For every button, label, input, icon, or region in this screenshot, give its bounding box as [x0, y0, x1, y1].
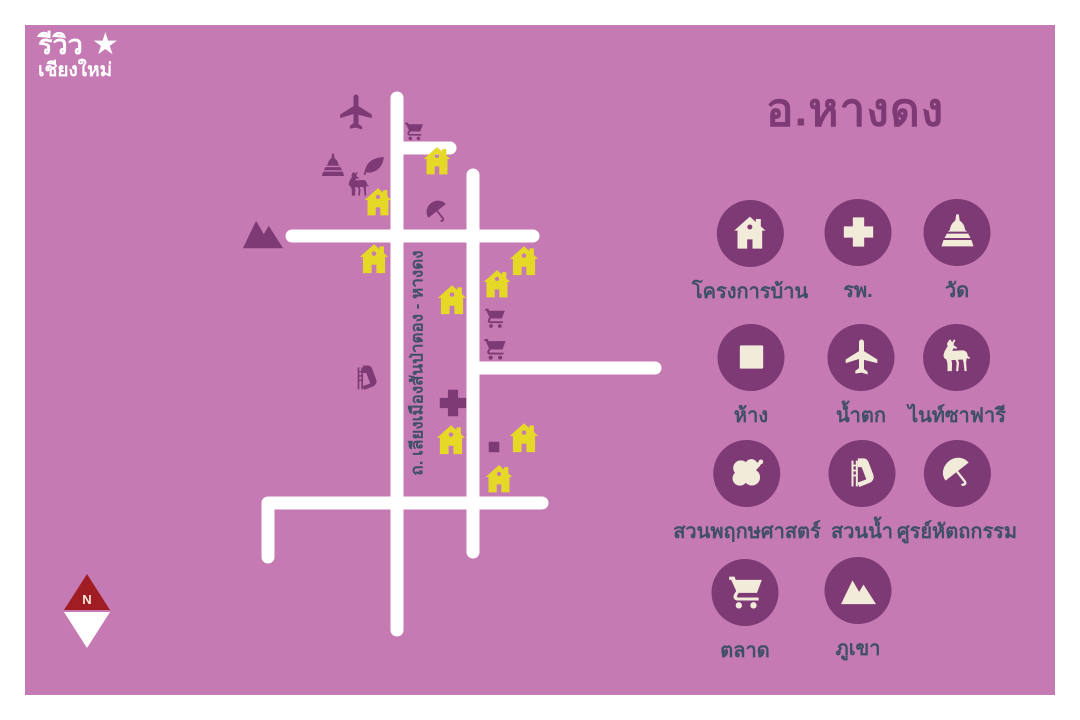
airplane-icon — [841, 337, 881, 377]
legend-label: สวนพฤกษศาสตร์ — [673, 515, 821, 547]
umbrella-icon — [937, 453, 977, 493]
slide-icon — [842, 453, 882, 493]
square-icon — [731, 337, 771, 377]
legend-item-house: โครงการบ้าน — [692, 200, 808, 307]
legend-label: ห้าง — [734, 399, 768, 431]
legend-item-flower: สวนพฤกษศาสตร์ — [673, 440, 821, 547]
star-icon: ★ — [92, 30, 119, 60]
legend-circle — [828, 324, 895, 391]
cart-icon — [725, 572, 765, 612]
legend-circle — [924, 440, 991, 507]
legend-label: รพ. — [843, 274, 872, 306]
legend-item-square: ห้าง — [718, 324, 785, 431]
flower-icon — [727, 453, 767, 493]
legend-circle — [825, 199, 892, 266]
legend-circle — [714, 440, 781, 507]
road-name-label: ถ. เลียงเมืองสันป่าตอง - หางดง — [404, 250, 431, 475]
mountain-icon — [838, 570, 878, 610]
legend-label: โครงการบ้าน — [692, 275, 808, 307]
logo-line1: รีวิว — [38, 31, 83, 59]
legend-circle — [924, 199, 991, 266]
legend-circle — [718, 324, 785, 391]
cross-icon — [838, 212, 878, 252]
legend-item-airplane: น้ำตก — [828, 324, 895, 431]
logo-line2: เชียงใหม่ — [38, 61, 119, 81]
legend-item-slide: สวนน้ำ — [829, 440, 896, 547]
legend-item-temple: วัด — [924, 199, 991, 306]
compass-south-triangle — [64, 612, 110, 648]
legend-label: วัด — [945, 274, 969, 306]
compass-icon: N — [63, 573, 111, 649]
legend-circle — [825, 557, 892, 624]
legend-item-deer: ไนท์ซาฟารี — [908, 324, 1006, 431]
legend-circle — [717, 200, 784, 267]
house-icon — [730, 213, 770, 253]
temple-icon — [937, 212, 977, 252]
legend-label: ไนท์ซาฟารี — [908, 399, 1006, 431]
deer-icon — [937, 337, 977, 377]
legend-label: ตลาด — [720, 634, 769, 666]
compass-n-label: N — [82, 592, 91, 607]
legend-item-umbrella: ศูรย์หัตถกรรม — [897, 440, 1017, 547]
legend-item-cart: ตลาด — [712, 559, 779, 666]
legend-label: ภูเขา — [836, 632, 881, 664]
legend-circle — [923, 324, 990, 391]
legend-circle — [712, 559, 779, 626]
legend-label: น้ำตก — [836, 399, 886, 431]
legend-label: ศูรย์หัตถกรรม — [897, 515, 1017, 547]
legend-item-mountain: ภูเขา — [825, 557, 892, 664]
page-title: อ.หางดง — [766, 74, 944, 147]
legend-circle — [829, 440, 896, 507]
legend-item-cross: รพ. — [825, 199, 892, 306]
logo: รีวิว ★ เชียงใหม่ — [38, 30, 119, 81]
legend-label: สวนน้ำ — [831, 515, 893, 547]
